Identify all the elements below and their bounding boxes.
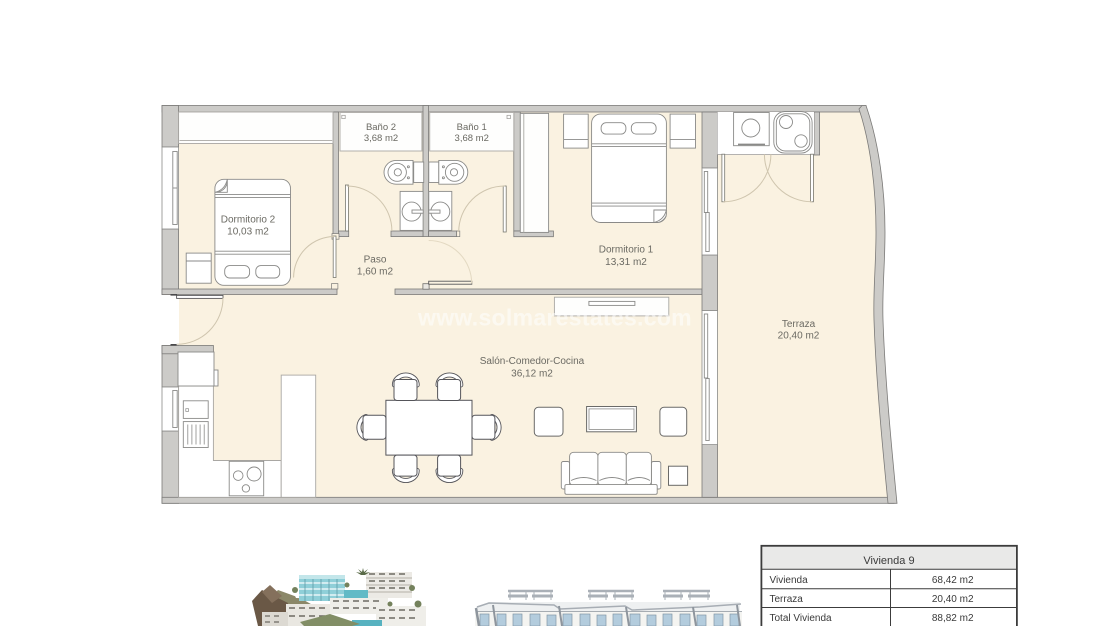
svg-text:Paso: Paso: [364, 255, 387, 266]
svg-text:Dormitorio 2: Dormitorio 2: [221, 215, 276, 226]
svg-text:3,68 m2: 3,68 m2: [455, 133, 489, 144]
svg-text:Baño 2: Baño 2: [366, 122, 396, 133]
svg-text:Terraza: Terraza: [782, 319, 816, 330]
svg-text:Vivienda: Vivienda: [770, 575, 809, 586]
svg-text:36,12 m2: 36,12 m2: [511, 369, 553, 380]
svg-text:Total Vivienda: Total Vivienda: [770, 613, 833, 624]
svg-text:Vivienda 9: Vivienda 9: [863, 555, 914, 567]
svg-text:88,82 m2: 88,82 m2: [932, 613, 974, 624]
svg-text:Salón-Comedor-Cocina: Salón-Comedor-Cocina: [480, 356, 585, 367]
svg-text:Dormitorio 1: Dormitorio 1: [599, 244, 654, 255]
svg-text:www.solmarestates.com: www.solmarestates.com: [417, 305, 692, 331]
svg-text:68,42 m2: 68,42 m2: [932, 575, 974, 586]
svg-text:Baño 1: Baño 1: [457, 122, 487, 133]
svg-text:Terraza: Terraza: [770, 594, 804, 605]
svg-text:13,31 m2: 13,31 m2: [605, 257, 647, 268]
svg-text:1,60 m2: 1,60 m2: [357, 267, 394, 278]
svg-text:20,40 m2: 20,40 m2: [778, 331, 820, 342]
svg-text:10,03 m2: 10,03 m2: [227, 227, 269, 238]
svg-text:3,68 m2: 3,68 m2: [364, 133, 398, 144]
svg-text:20,40 m2: 20,40 m2: [932, 594, 974, 605]
